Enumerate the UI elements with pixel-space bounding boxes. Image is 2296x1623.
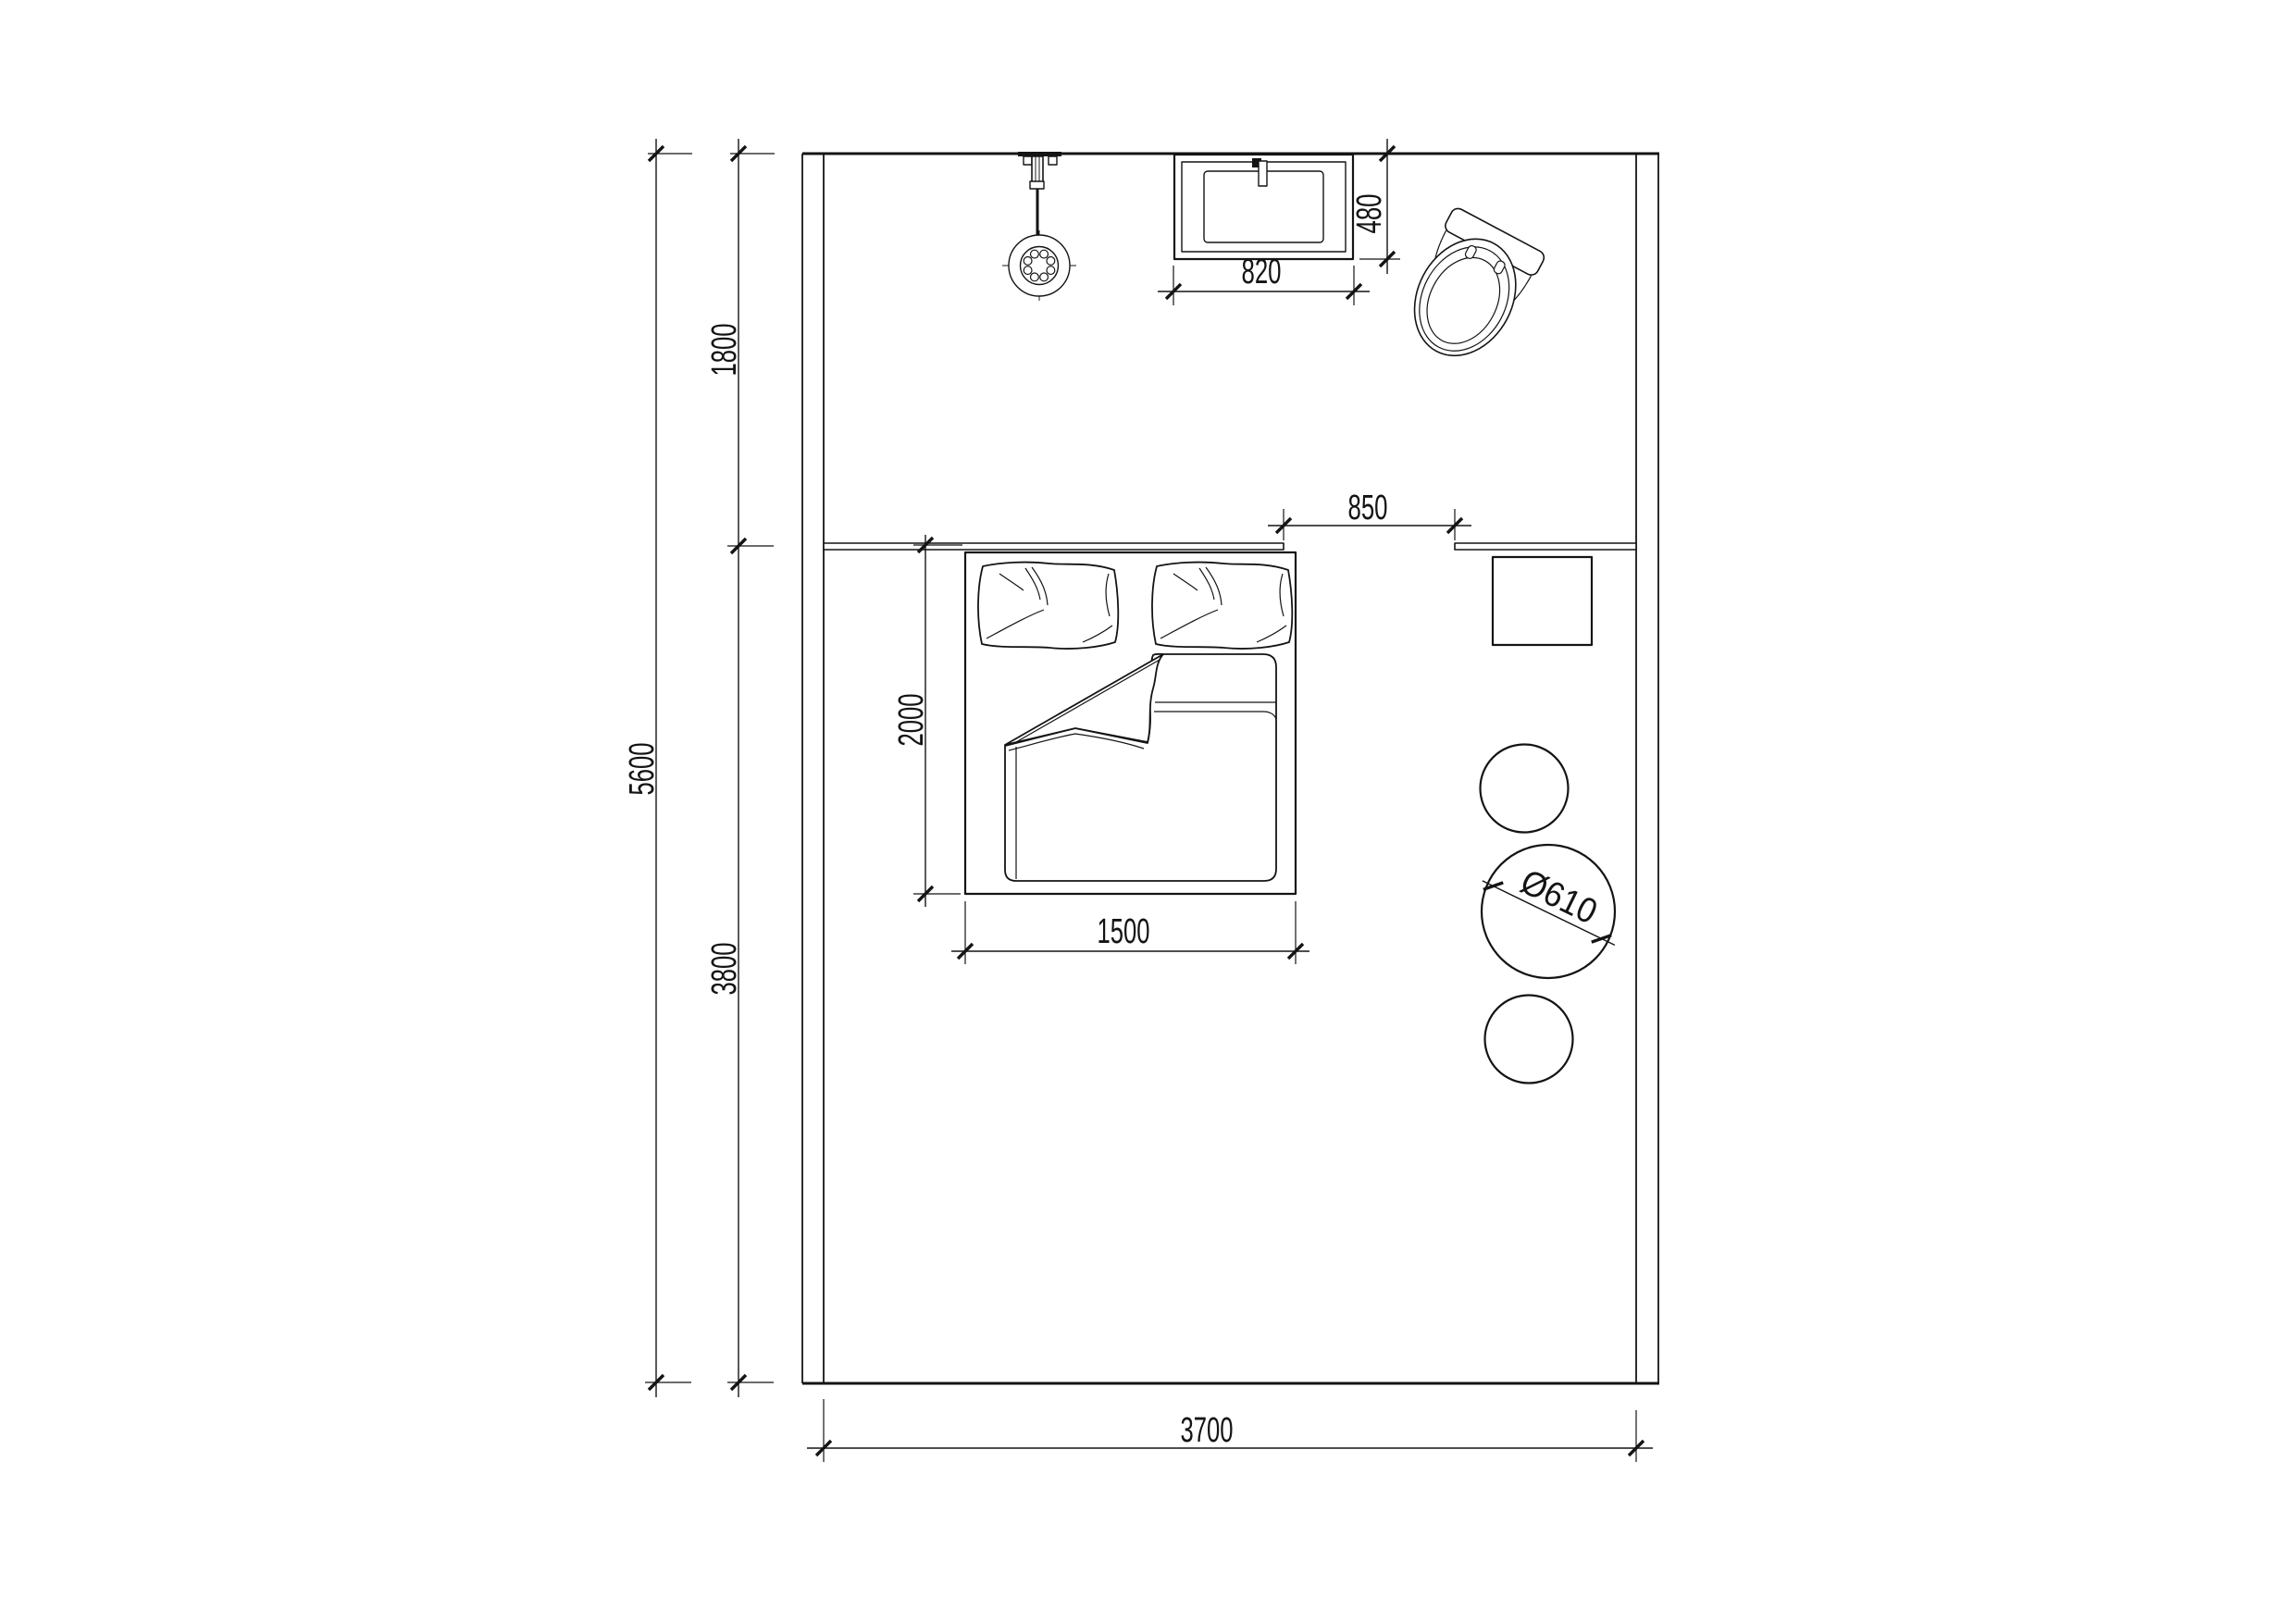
dim-label-1800: 1800 (705, 324, 744, 377)
hand-shower-icon (1002, 152, 1076, 301)
wall-left (802, 154, 824, 1383)
dim-850: 850 (1268, 489, 1471, 540)
stool-bottom (1485, 996, 1573, 1084)
shower-head (1002, 230, 1076, 301)
dim-label-5600: 5600 (623, 743, 662, 796)
dim-label-820: 820 (1242, 253, 1282, 291)
nightstand-square (1493, 557, 1592, 645)
pillow-right (1152, 563, 1292, 649)
floor-plan: 5600 1800 3800 820 480 850 2000 (0, 0, 2296, 1623)
dim-label-480: 480 (1350, 194, 1389, 234)
floor-plan-svg: 5600 1800 3800 820 480 850 2000 (0, 0, 2296, 1623)
dim-label-2000: 2000 (892, 694, 931, 747)
stool-top (1481, 745, 1569, 833)
dim-label-1500: 1500 (1098, 912, 1150, 951)
dim-label-850: 850 (1348, 489, 1388, 527)
toilet-icon (1391, 206, 1546, 376)
pillow-left (978, 563, 1118, 649)
headboard-shelf (824, 543, 1636, 550)
dim-820: 820 (1158, 253, 1370, 305)
dim-2000: 2000 (892, 535, 962, 907)
dim-label-3800: 3800 (705, 943, 744, 996)
dim-3700: 3700 (807, 1399, 1653, 1462)
double-bed-icon (965, 552, 1296, 894)
dim-480: 480 (1350, 139, 1400, 274)
faucet-spout (1259, 161, 1267, 186)
dim-label-3700: 3700 (1181, 1411, 1234, 1450)
wall-right (1636, 154, 1658, 1383)
dim-5600: 5600 (623, 139, 692, 1397)
dim-1500: 1500 (951, 901, 1309, 964)
shelf-left-segment (824, 543, 1284, 550)
dim-1800-3800: 1800 3800 (705, 139, 775, 1397)
vanity-basin-icon (1174, 155, 1353, 259)
shelf-right-segment (1455, 543, 1636, 550)
